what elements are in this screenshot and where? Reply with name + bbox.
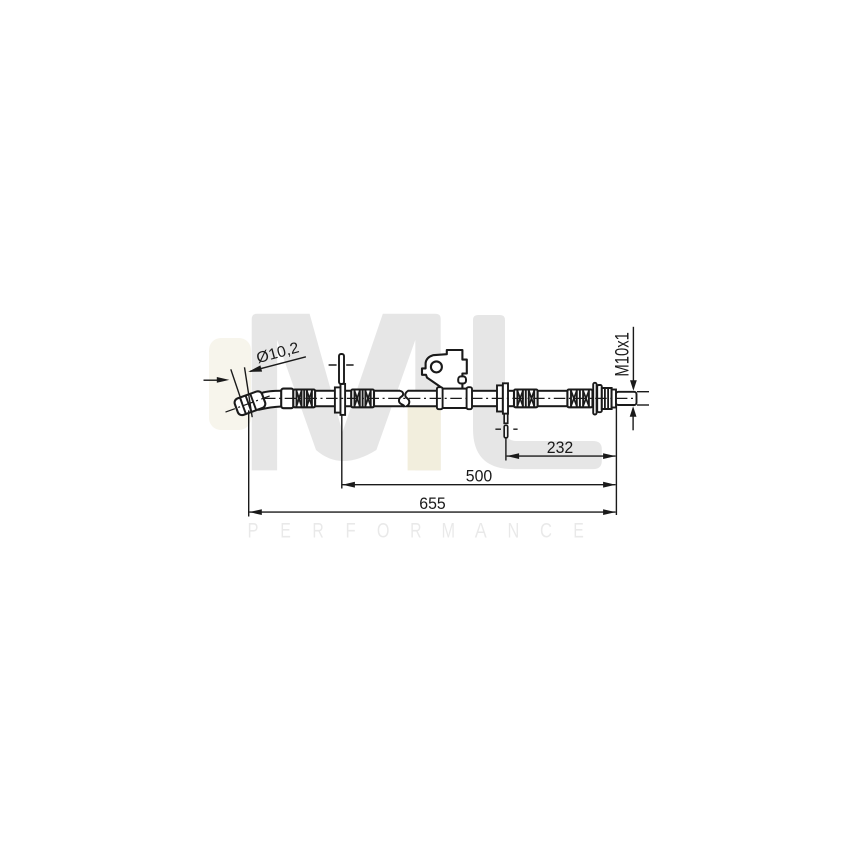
svg-text:R: R [312,519,323,543]
svg-text:A: A [475,519,488,543]
svg-text:E: E [573,519,584,543]
svg-text:R: R [410,519,421,543]
svg-text:C: C [540,519,552,543]
svg-text:E: E [280,519,291,543]
svg-text:655: 655 [419,495,446,513]
svg-text:O: O [377,519,390,543]
svg-text:500: 500 [466,468,493,486]
svg-text:F: F [346,519,356,543]
svg-text:232: 232 [547,439,574,457]
svg-text:P: P [248,519,259,543]
svg-text:M10x1: M10x1 [613,332,634,377]
svg-text:M: M [442,519,456,543]
svg-text:N: N [508,519,520,543]
